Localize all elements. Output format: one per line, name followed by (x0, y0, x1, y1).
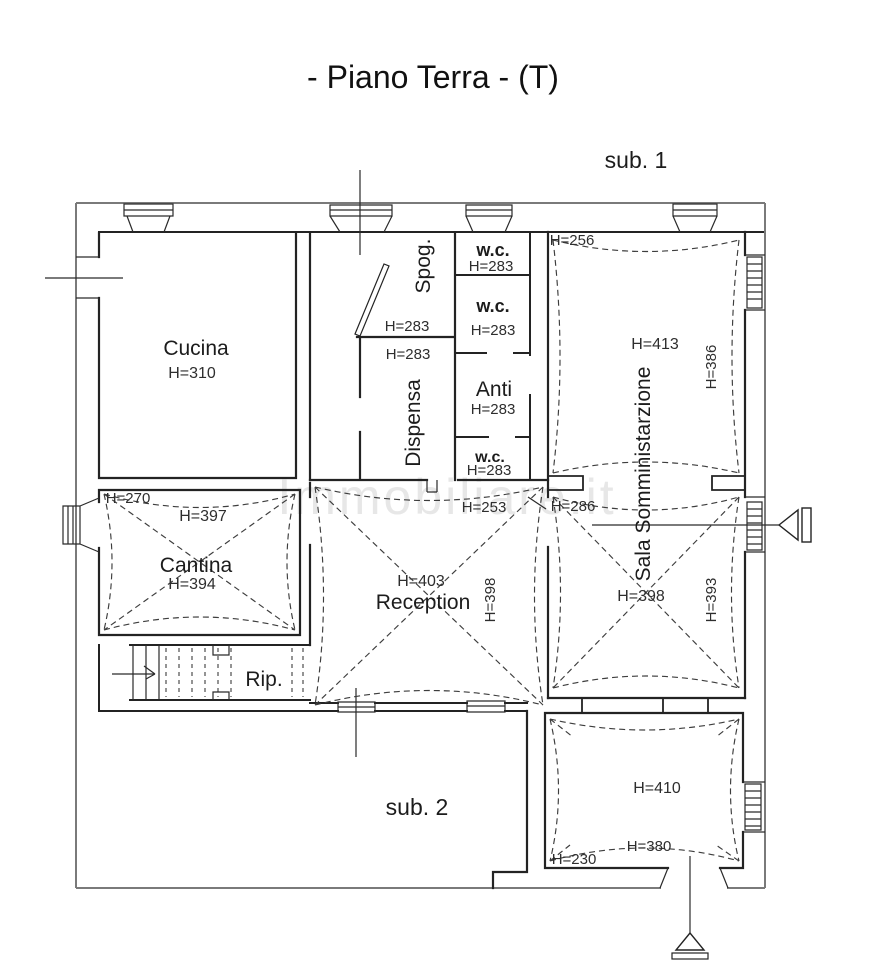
cucina-left-window-lines (45, 257, 123, 298)
bottom-room-piers (582, 698, 708, 713)
reception-h398: H=398 (482, 578, 499, 623)
wc-mid-height: H=283 (471, 322, 516, 339)
floor-plan: Immobiliare.it - Piano Terra - (T) sub. … (0, 0, 882, 962)
entrance-triangle-bottom (676, 933, 704, 950)
reception-h253: H=253 (462, 499, 507, 516)
sub1-label: sub. 1 (605, 147, 668, 173)
cantina-h270: H=270 (106, 490, 151, 507)
cantina-h394: H=394 (168, 576, 216, 593)
right-window-sala-lower (747, 502, 762, 550)
rip-notches (213, 645, 229, 700)
dispensa-height: H=283 (386, 346, 431, 363)
sub2-label: sub. 2 (386, 794, 449, 820)
top-window-sala (673, 204, 717, 232)
wc-mid-label: w.c. (475, 296, 509, 316)
spog-height: H=283 (385, 318, 430, 335)
cantina-label: Cantina (160, 554, 233, 577)
room-labels: Cucina H=310 Spog. H=283 H=283 Dispensa … (106, 232, 720, 868)
south-walls (99, 645, 527, 711)
anti-label: Anti (476, 378, 512, 401)
right-window-bottom-room (745, 784, 761, 830)
cucina-label: Cucina (163, 337, 229, 360)
sala-h398: H=398 (617, 588, 665, 605)
cantina-h397: H=397 (179, 508, 227, 525)
entrance-arrow-right (592, 508, 811, 542)
top-window-wc (466, 205, 512, 232)
entrance-triangle-right (779, 510, 798, 540)
anti-height: H=283 (471, 401, 516, 418)
bottom-room-h230: H=230 (552, 851, 597, 868)
entrance-arrow-bottom (672, 856, 708, 959)
wc-top-label: w.c. (475, 240, 509, 260)
sala-h393: H=393 (703, 578, 720, 623)
sala-h413: H=413 (631, 336, 679, 353)
wc-low-height: H=283 (467, 462, 512, 479)
entrance-bar-bottom (672, 953, 708, 959)
spog-label: Spog. (412, 239, 435, 294)
cucina-height: H=310 (168, 365, 216, 382)
stair-stringers (133, 645, 159, 700)
rip-label: Rip. (245, 668, 282, 691)
entrance-bar-right (802, 508, 811, 542)
bottom-door-splays (660, 868, 728, 888)
bottom-room-h410: H=410 (633, 780, 681, 797)
right-window-sala-upper (747, 257, 762, 308)
sala-label: Sala Somministarzione (632, 367, 655, 582)
bottom-room-h380: H=380 (627, 838, 672, 855)
sala-h256: H=256 (550, 232, 595, 249)
cantina-window-box (63, 498, 99, 552)
sala-h386: H=386 (703, 345, 720, 390)
reception-h403: H=403 (397, 573, 445, 590)
top-window-spog (330, 205, 392, 232)
watermark: Immobiliare.it (277, 469, 616, 525)
sub2-walls (493, 711, 527, 888)
entrance-arrows (592, 508, 811, 959)
south-window-right (467, 701, 505, 712)
sala-h286: H=286 (551, 498, 596, 515)
top-window-cucina (124, 204, 173, 232)
reception-label: Reception (376, 591, 471, 614)
page-title: - Piano Terra - (T) (307, 59, 559, 95)
wc-top-height: H=283 (469, 258, 514, 275)
dispensa-label: Dispensa (402, 379, 425, 467)
